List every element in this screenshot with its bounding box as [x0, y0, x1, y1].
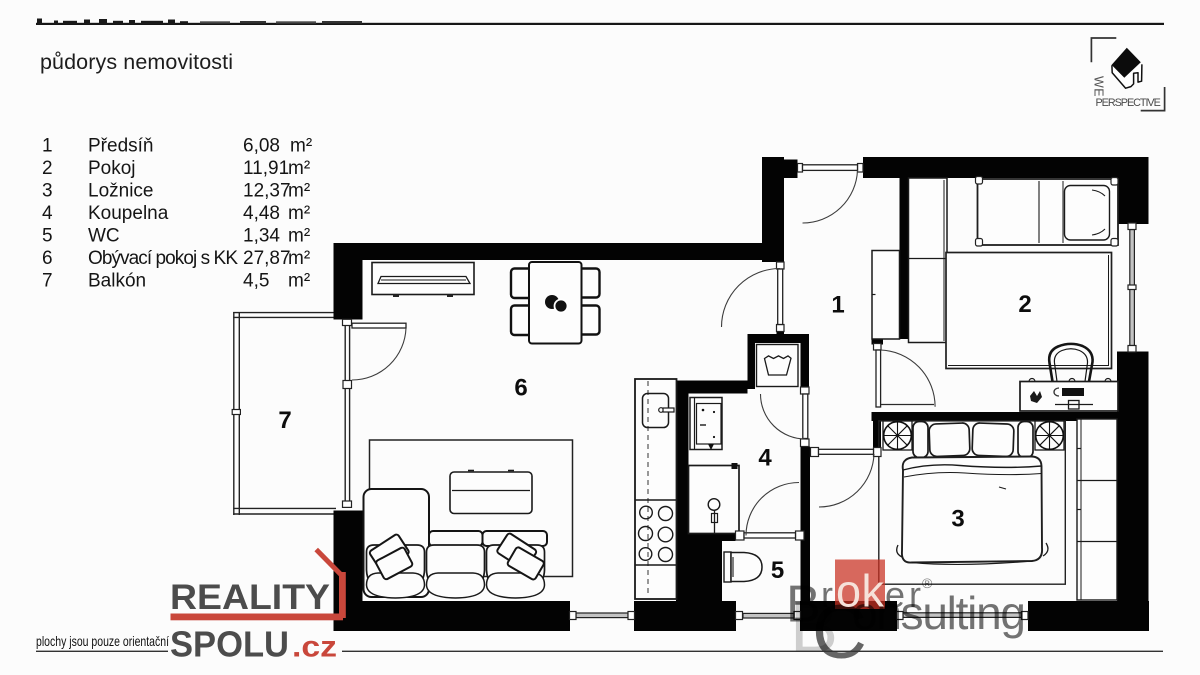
svg-text:4,5: 4,5 — [243, 271, 269, 292]
svg-text:Obývací pokoj s KK: Obývací pokoj s KK — [88, 248, 238, 269]
svg-text:4,48: 4,48 — [243, 203, 280, 224]
svg-text:r: r — [821, 574, 833, 615]
svg-text:B: B — [786, 576, 821, 634]
svg-text:11,91: 11,91 — [243, 158, 289, 179]
svg-text:PERSPECTIVE: PERSPECTIVE — [1096, 97, 1162, 109]
svg-text:Koupelna: Koupelna — [88, 203, 169, 224]
svg-text:4: 4 — [42, 203, 53, 224]
svg-text:půdorys nemovitosti: půdorys nemovitosti — [40, 50, 233, 74]
svg-text:6: 6 — [514, 375, 527, 402]
svg-text:2: 2 — [1018, 291, 1031, 318]
svg-text:plochy jsou pouze orientační: plochy jsou pouze orientační — [36, 633, 169, 649]
svg-text:Předsíň: Předsíň — [88, 136, 153, 157]
svg-text:ok: ok — [836, 566, 885, 617]
svg-text:m²: m² — [288, 248, 310, 269]
svg-text:Ložnice: Ložnice — [88, 181, 154, 202]
svg-text:®: ® — [922, 575, 933, 591]
svg-text:1: 1 — [42, 136, 53, 157]
svg-text:1: 1 — [831, 291, 844, 318]
svg-text:REALITY: REALITY — [170, 578, 330, 617]
svg-text:7: 7 — [278, 407, 291, 434]
svg-text:m²: m² — [288, 226, 310, 247]
svg-text:Pokoj: Pokoj — [88, 158, 136, 179]
svg-text:.cz: .cz — [292, 631, 337, 664]
svg-text:5: 5 — [771, 557, 784, 584]
svg-text:er: er — [885, 574, 921, 615]
svg-text:WC: WC — [88, 226, 120, 247]
svg-text:Balkón: Balkón — [88, 271, 146, 292]
svg-text:m²: m² — [288, 181, 310, 202]
svg-text:5: 5 — [42, 226, 53, 247]
svg-text:WE: WE — [1092, 76, 1106, 97]
svg-text:4: 4 — [758, 445, 772, 472]
svg-text:6: 6 — [42, 248, 53, 269]
svg-text:3: 3 — [951, 506, 964, 533]
svg-text:m²: m² — [290, 136, 312, 157]
svg-text:m²: m² — [288, 203, 310, 224]
svg-text:1,34: 1,34 — [243, 226, 280, 247]
svg-text:7: 7 — [42, 271, 53, 292]
svg-text:6,08: 6,08 — [243, 136, 280, 157]
svg-text:2: 2 — [42, 158, 53, 179]
svg-text:27,87: 27,87 — [243, 248, 291, 269]
svg-text:3: 3 — [42, 181, 53, 202]
svg-text:SPOLU: SPOLU — [170, 624, 289, 665]
svg-text:m²: m² — [288, 271, 310, 292]
svg-text:m²: m² — [288, 158, 310, 179]
svg-text:12,37: 12,37 — [243, 181, 291, 202]
